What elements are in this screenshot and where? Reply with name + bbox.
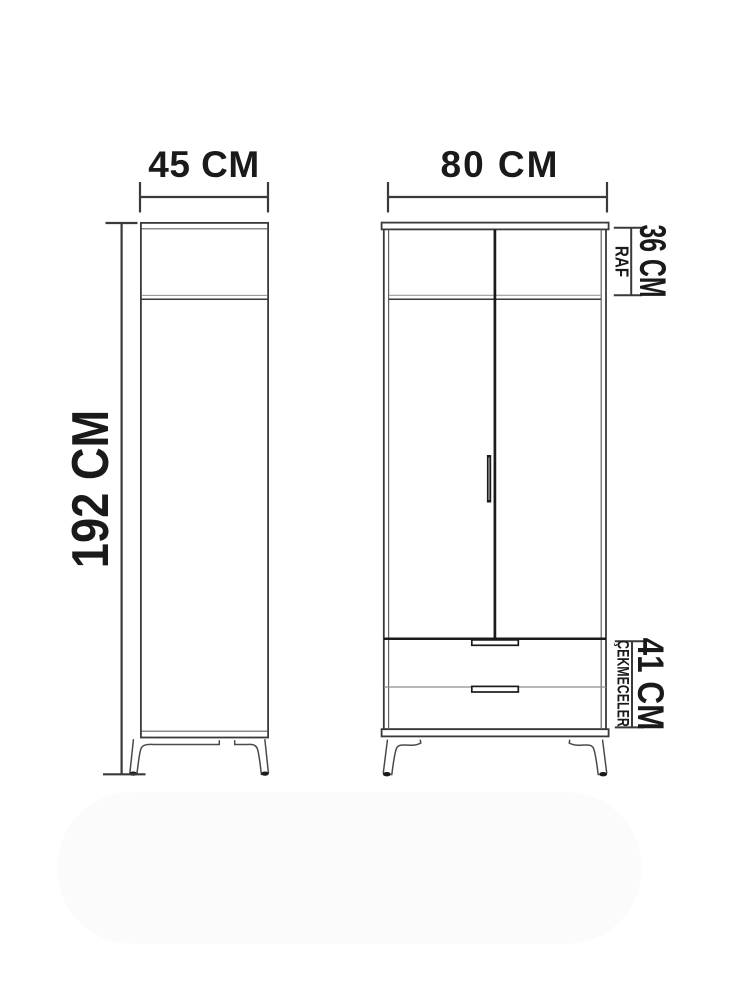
side-cabinet-outline bbox=[141, 223, 268, 738]
front-right-leg bbox=[569, 740, 607, 775]
drawers-height-label: 41 CM bbox=[633, 616, 667, 752]
side-front-leg bbox=[130, 740, 219, 775]
shelf-label: RAF bbox=[613, 229, 632, 295]
side-back-leg bbox=[235, 740, 269, 775]
wardrobe-technical-drawing: 45 CM 80 CM 192 CM 36 CM RAF 41 CM ÇEKME… bbox=[0, 0, 750, 1000]
drawers-label: ÇEKMECELER bbox=[614, 635, 631, 733]
dimension-side-width bbox=[140, 182, 268, 213]
front-bottom-panel bbox=[382, 729, 609, 736]
front-left-leg-foot bbox=[383, 772, 391, 776]
side-view-drawing bbox=[129, 223, 268, 776]
side-width-label: 45 CM bbox=[122, 146, 286, 184]
front-right-leg-foot bbox=[599, 772, 607, 776]
front-top-panel bbox=[382, 223, 609, 230]
front-left-leg bbox=[383, 740, 421, 775]
side-back-leg-foot bbox=[261, 772, 269, 776]
front-view-drawing bbox=[382, 223, 609, 777]
front-width-label: 80 CM bbox=[408, 146, 592, 184]
shelf-height-label: 36 CM bbox=[635, 207, 669, 314]
drawer-handle-bottom bbox=[472, 686, 519, 692]
height-label: 192 CM bbox=[63, 359, 119, 620]
dimension-front-width bbox=[388, 182, 607, 213]
drawer-handle-top bbox=[472, 640, 519, 645]
